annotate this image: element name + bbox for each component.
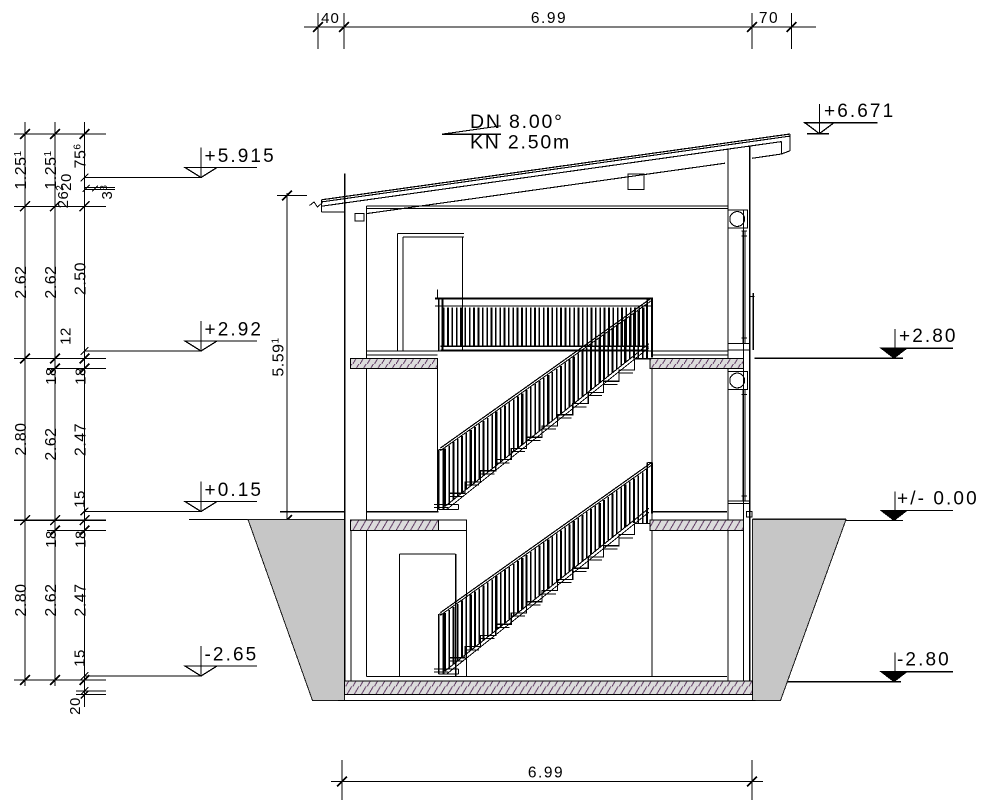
svg-text:2.50: 2.50	[73, 262, 90, 295]
svg-text:20: 20	[67, 697, 84, 715]
svg-text:2.80: 2.80	[13, 583, 30, 616]
svg-text:2.80: 2.80	[13, 422, 30, 455]
svg-text:+/- 0.00: +/- 0.00	[897, 489, 979, 510]
svg-text:18: 18	[43, 367, 60, 385]
svg-text:18: 18	[73, 367, 90, 385]
svg-text:18: 18	[43, 530, 60, 548]
svg-text:2.62: 2.62	[43, 583, 60, 616]
svg-text:2.47: 2.47	[73, 583, 90, 616]
svg-text:40: 40	[321, 10, 340, 27]
svg-text:+2.92: +2.92	[205, 320, 264, 341]
svg-text:+0.15: +0.15	[205, 480, 264, 501]
svg-text:6.99: 6.99	[528, 765, 564, 782]
svg-text:+6.671: +6.671	[824, 101, 895, 122]
svg-text:6.99: 6.99	[531, 10, 567, 27]
svg-text:2.62: 2.62	[13, 265, 30, 298]
svg-text:2.62: 2.62	[43, 265, 60, 298]
svg-text:70: 70	[759, 10, 779, 27]
svg-text:-2.80: -2.80	[897, 650, 951, 671]
svg-text:DN 8.00°: DN 8.00°	[470, 111, 564, 133]
svg-text:18: 18	[73, 530, 90, 548]
svg-text:2.62: 2.62	[43, 427, 60, 460]
svg-text:+2.80: +2.80	[899, 326, 958, 347]
svg-text:KN 2.50m: KN 2.50m	[470, 132, 571, 154]
svg-text:2.47: 2.47	[73, 423, 90, 456]
svg-text:-2.65: -2.65	[205, 645, 259, 666]
svg-text:12: 12	[58, 327, 75, 345]
svg-text:15: 15	[71, 649, 88, 667]
svg-text:+5.915: +5.915	[205, 146, 276, 167]
svg-text:15: 15	[71, 490, 88, 508]
